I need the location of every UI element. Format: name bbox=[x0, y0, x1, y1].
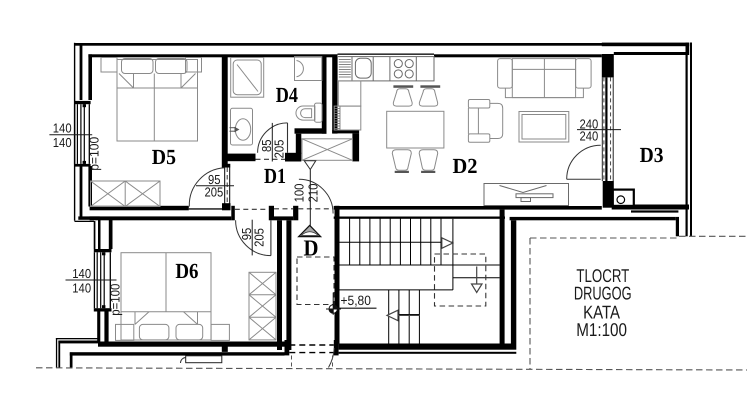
svg-text:205: 205 bbox=[205, 185, 224, 200]
svg-text:140: 140 bbox=[72, 280, 91, 295]
svg-text:D6: D6 bbox=[175, 259, 198, 283]
svg-text:205: 205 bbox=[271, 140, 286, 159]
svg-text:DRUGOG: DRUGOG bbox=[574, 282, 632, 303]
svg-text:D5: D5 bbox=[152, 145, 176, 169]
svg-text:M1:100: M1:100 bbox=[576, 319, 627, 340]
svg-text:210: 210 bbox=[305, 184, 320, 203]
svg-text:140: 140 bbox=[53, 121, 72, 136]
svg-text:140: 140 bbox=[72, 266, 91, 281]
svg-text:D1: D1 bbox=[264, 164, 286, 188]
svg-text:p=100: p=100 bbox=[108, 284, 123, 316]
svg-text:205: 205 bbox=[251, 228, 266, 247]
svg-text:D3: D3 bbox=[640, 143, 664, 167]
svg-text:140: 140 bbox=[53, 135, 72, 150]
svg-text:D4: D4 bbox=[276, 83, 298, 107]
svg-text:D2: D2 bbox=[453, 154, 478, 178]
svg-text:240: 240 bbox=[580, 129, 599, 144]
svg-text:+5,80: +5,80 bbox=[341, 293, 371, 308]
svg-text:D: D bbox=[304, 236, 319, 261]
svg-text:p=100: p=100 bbox=[87, 137, 102, 171]
